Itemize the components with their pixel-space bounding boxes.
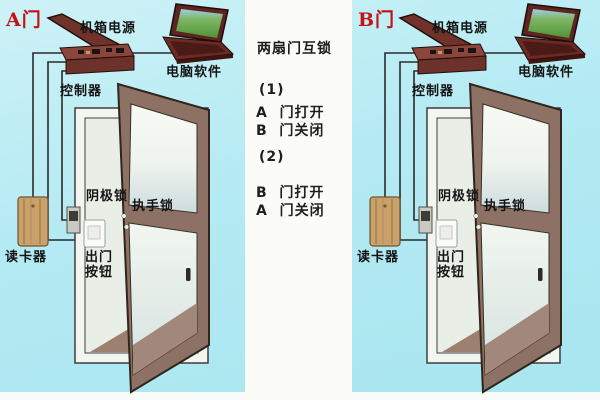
exit-button-label-line1: 出门 <box>85 250 113 265</box>
door-leaf <box>470 84 561 392</box>
cathode-lock-device <box>419 207 432 233</box>
lock-plate-dot <box>124 225 128 229</box>
diagram-canvas: A门 机箱电源 电脑软件 控制器 阴极锁 执手锁 出门按钮 读卡器 两扇门互锁 … <box>0 0 600 400</box>
computer-software-label: 电脑软件 <box>166 65 222 80</box>
cathode-lock-label: 阴极锁 <box>438 189 480 204</box>
lock-plate-dot <box>122 214 126 218</box>
card-reader-label: 读卡器 <box>357 250 399 265</box>
card-reader-icon <box>18 197 48 246</box>
controller-label: 控制器 <box>60 84 102 99</box>
door-unit-b: B门 机箱电源 电脑软件 控制器 阴极锁 执手锁 出门按钮 读卡器 <box>352 0 597 400</box>
lock-plate-dot <box>474 214 478 218</box>
laptop-icon <box>515 4 585 64</box>
interlock-case1-number: (1) <box>259 82 285 98</box>
power-box-label: 机箱电源 <box>80 21 136 36</box>
interlock-case1-line1: A 门打开 <box>256 102 325 122</box>
laptop-icon <box>163 4 233 64</box>
lock-plate-dot <box>476 225 480 229</box>
interlock-case2-line2: A 门关闭 <box>256 200 325 220</box>
card-reader-label: 读卡器 <box>5 250 47 265</box>
interlock-case1-line2: B 门关闭 <box>256 120 324 140</box>
exit-button-label: 出门按钮 <box>437 250 465 280</box>
power-box-label: 机箱电源 <box>432 21 488 36</box>
cathode-lock-label: 阴极锁 <box>86 189 128 204</box>
exit-button-label: 出门按钮 <box>85 250 113 280</box>
interlock-case2-line1: B 门打开 <box>256 182 324 202</box>
interlock-case2-number: (2) <box>259 149 285 165</box>
handle-lock-label: 执手锁 <box>484 199 526 214</box>
card-reader-icon <box>370 197 400 246</box>
door-leaf <box>118 84 209 392</box>
cathode-lock-device <box>67 207 80 233</box>
door-a-tag: A门 <box>6 5 42 32</box>
exit-button-label-line2: 按钮 <box>437 265 465 280</box>
exit-button-label-line2: 按钮 <box>85 265 113 280</box>
interlock-panel: 两扇门互锁 (1) A 门打开 B 门关闭 (2) B 门打开 A 门关闭 <box>245 0 352 400</box>
door-b-tag: B门 <box>358 5 395 32</box>
exit-button-label-line1: 出门 <box>437 250 465 265</box>
computer-software-label: 电脑软件 <box>518 65 574 80</box>
controller-label: 控制器 <box>412 84 454 99</box>
exit-button-device <box>84 220 105 247</box>
exit-button-device <box>436 220 457 247</box>
interlock-title: 两扇门互锁 <box>257 38 332 58</box>
door-handle <box>186 268 191 281</box>
handle-lock-label: 执手锁 <box>132 199 174 214</box>
door-unit-a: A门 机箱电源 电脑软件 控制器 阴极锁 执手锁 出门按钮 读卡器 <box>0 0 245 400</box>
door-handle <box>538 268 543 281</box>
